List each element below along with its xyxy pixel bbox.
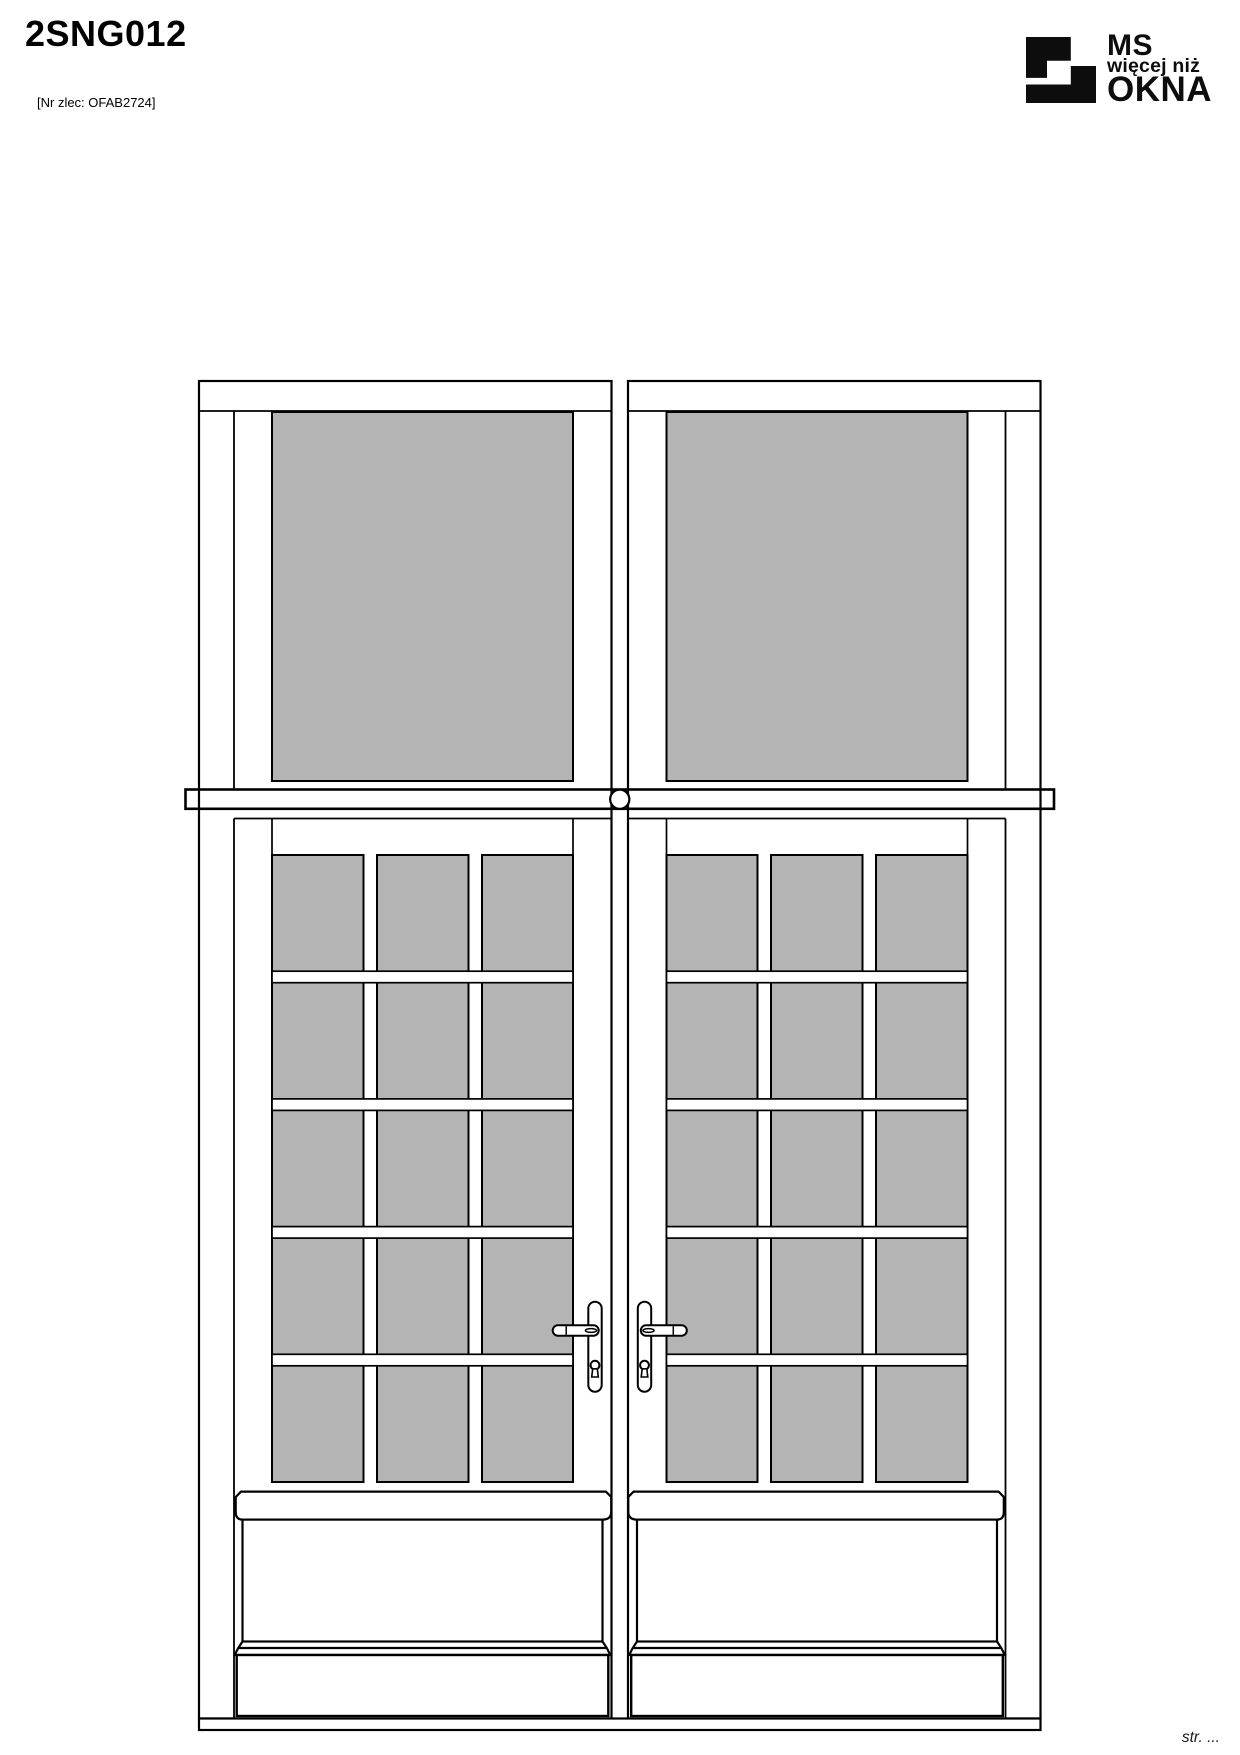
muntin-band <box>272 1227 573 1239</box>
panel-face <box>243 1520 603 1642</box>
panel-cap-molding <box>236 1492 612 1520</box>
door-glass-column <box>482 855 573 1482</box>
bottom-panel <box>235 1492 612 1716</box>
handle-backplate <box>588 1302 601 1392</box>
transom-connector-circle <box>610 790 629 809</box>
door-unit-right <box>628 381 1041 1719</box>
handle-pivot-slot <box>585 1329 596 1333</box>
page-number: str. ... <box>1182 1729 1220 1747</box>
door-glass-column <box>272 855 364 1482</box>
door-unit-left <box>199 381 612 1719</box>
muntin-band <box>272 971 573 983</box>
muntin-band <box>272 1099 573 1111</box>
document-page: 2SNG012 [Nr zlec: OFAB2724] MS więcej ni… <box>0 0 1240 1755</box>
door-kick-panel <box>237 1655 609 1716</box>
transom-coupler <box>186 790 1055 809</box>
sill-board <box>199 1719 1041 1731</box>
door-glass-column <box>377 855 469 1482</box>
transom-glass-pane <box>272 412 573 781</box>
muntin-band <box>272 1354 573 1366</box>
door-technical-drawing <box>0 0 1240 1755</box>
keyhole-bottom <box>592 1369 599 1377</box>
